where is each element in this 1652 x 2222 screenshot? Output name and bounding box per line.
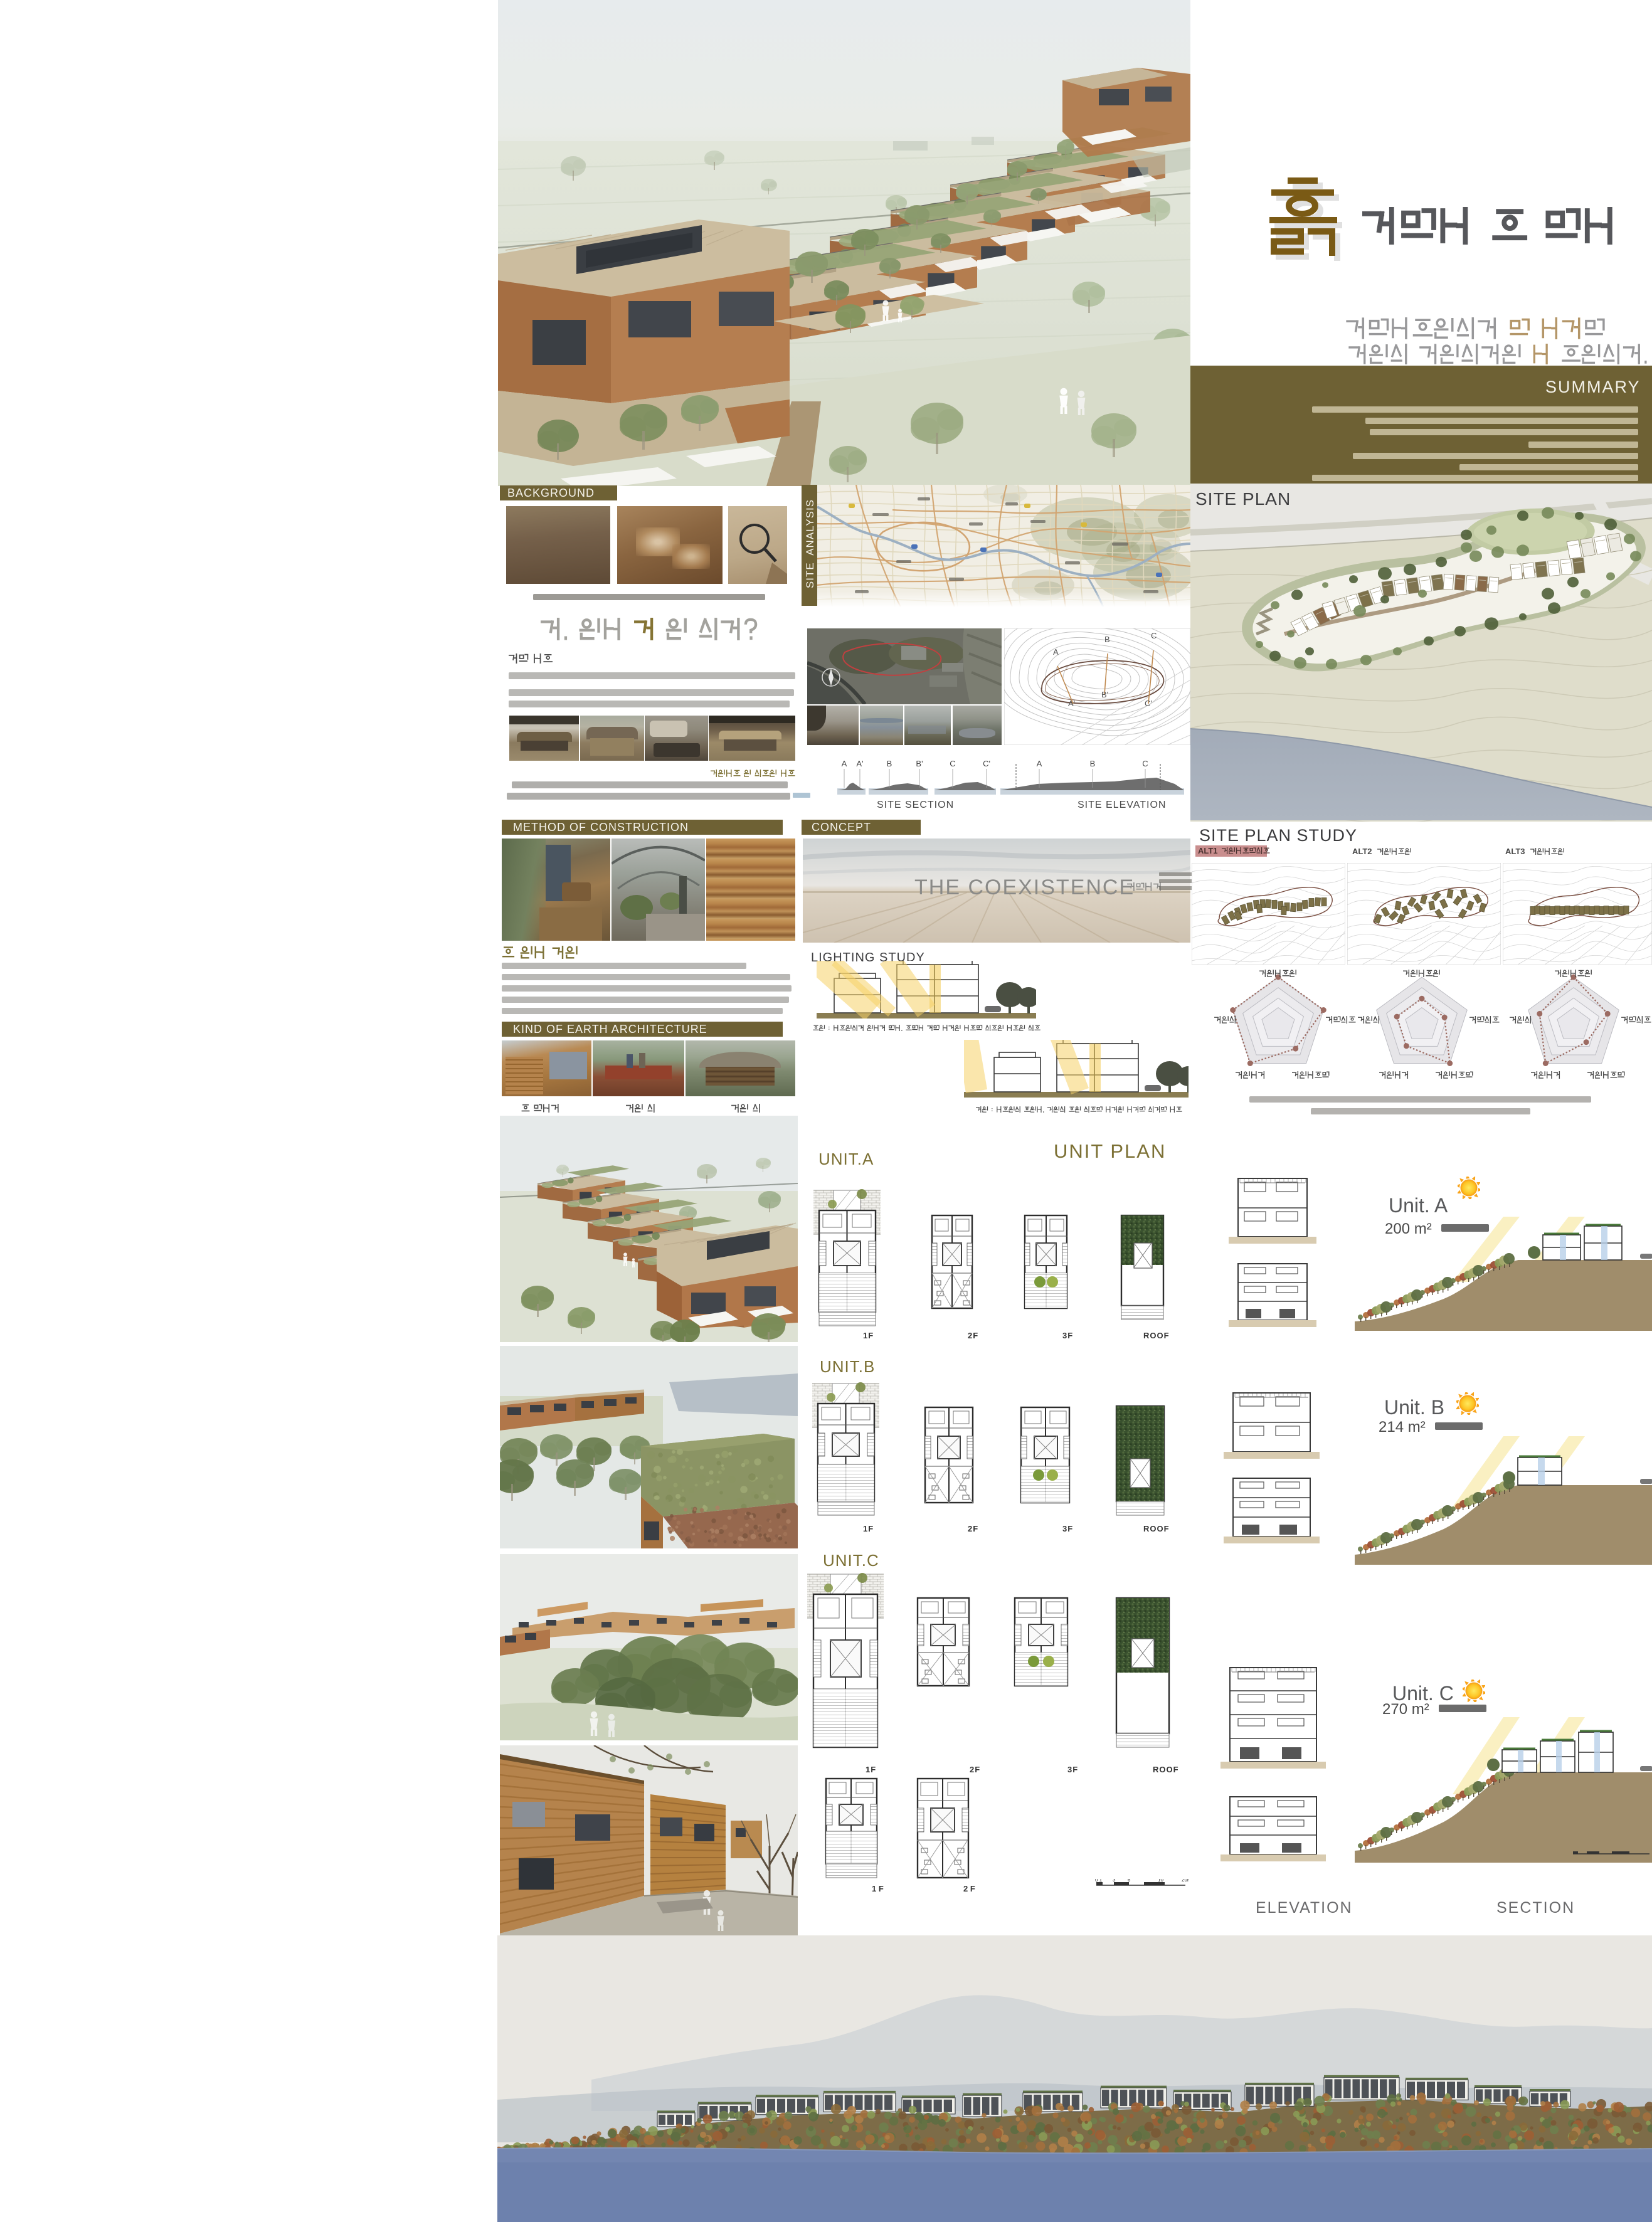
svg-text:3: 3 [1113, 1879, 1116, 1883]
svg-text:B': B' [1101, 690, 1108, 699]
svg-text:C: C [1151, 631, 1157, 640]
svg-text:0 1: 0 1 [1095, 1879, 1103, 1883]
svg-text:A: A [842, 759, 847, 768]
svg-text:20m: 20m [1182, 1879, 1189, 1883]
svg-text:A: A [1037, 759, 1042, 768]
svg-text:A': A' [1068, 699, 1075, 708]
svg-text:C: C [950, 759, 955, 768]
svg-text:B: B [1090, 759, 1096, 768]
svg-text:A': A' [856, 759, 863, 768]
svg-text:A: A [1053, 647, 1059, 657]
svg-text:C: C [1142, 759, 1148, 768]
svg-text:B: B [1104, 635, 1110, 644]
svg-text:B: B [887, 759, 892, 768]
svg-text:C': C' [1145, 699, 1152, 708]
svg-text:10: 10 [1158, 1879, 1163, 1883]
svg-text:6: 6 [1128, 1879, 1131, 1883]
svg-text:C': C' [983, 759, 990, 768]
svg-text:B': B' [916, 759, 923, 768]
